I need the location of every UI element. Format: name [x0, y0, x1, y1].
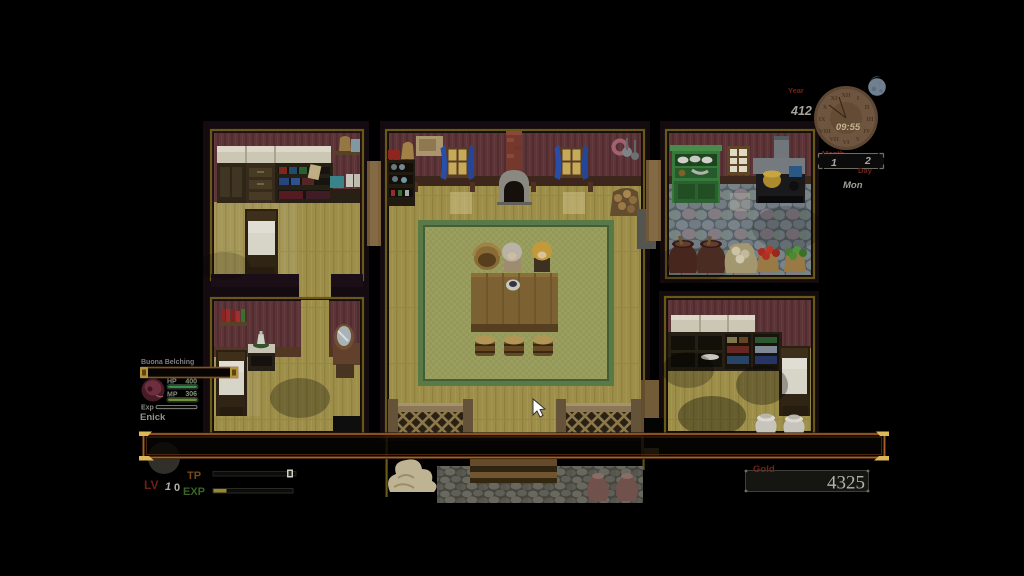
svg-text:Exp: Exp	[141, 405, 154, 412]
svg-text:Enick: Enick	[140, 412, 166, 423]
svg-text:LV: LV	[144, 478, 158, 492]
svg-text:09:55: 09:55	[836, 122, 861, 133]
svg-text:Mon: Mon	[843, 180, 863, 191]
svg-text:VI: VI	[843, 139, 850, 146]
svg-text:XII: XII	[841, 92, 851, 99]
svg-text:Year: Year	[788, 86, 804, 95]
svg-text:VIII: VIII	[819, 128, 831, 135]
svg-text:II: II	[865, 104, 870, 111]
svg-text:306: 306	[185, 391, 197, 398]
svg-text:IX: IX	[819, 116, 826, 123]
svg-text:Buona Belching: Buona Belching	[141, 359, 194, 366]
svg-text:X: X	[823, 104, 828, 111]
svg-text:Gold: Gold	[753, 464, 775, 475]
svg-text:EXP: EXP	[183, 486, 205, 498]
svg-text:VII: VII	[829, 136, 839, 143]
svg-text:XI: XI	[831, 95, 838, 102]
svg-text:1: 1	[165, 481, 171, 493]
svg-text:V: V	[856, 136, 861, 143]
svg-text:III: III	[866, 116, 874, 123]
svg-text:Day: Day	[858, 166, 873, 175]
svg-text:IV: IV	[864, 128, 871, 135]
svg-text:412: 412	[790, 104, 812, 118]
svg-text:0: 0	[174, 482, 180, 494]
svg-text:1: 1	[831, 157, 837, 169]
svg-text:TP: TP	[187, 470, 201, 482]
svg-text:4325: 4325	[827, 473, 865, 494]
